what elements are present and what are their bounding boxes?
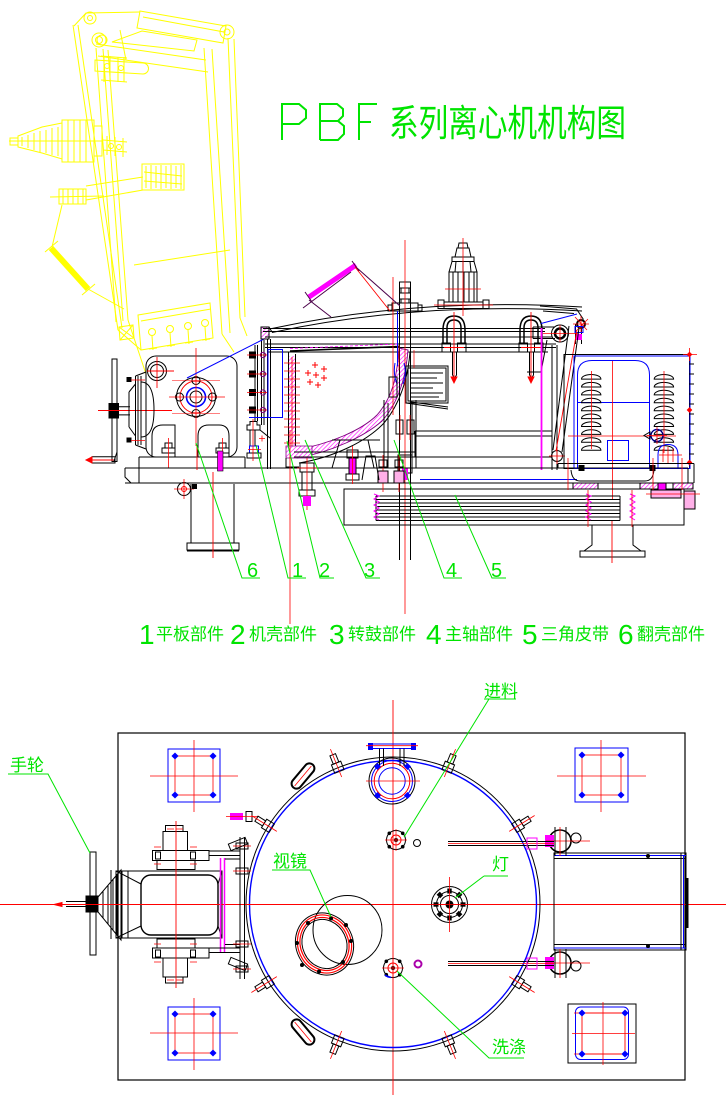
svg-text:手轮: 手轮 [10, 756, 44, 775]
svg-text:转鼓部件: 转鼓部件 [348, 625, 416, 644]
svg-text:3: 3 [364, 560, 375, 582]
svg-text:主轴部件: 主轴部件 [445, 625, 513, 644]
svg-text:4: 4 [426, 619, 442, 650]
svg-text:5: 5 [491, 560, 502, 582]
svg-text:6: 6 [618, 619, 634, 650]
svg-text:2: 2 [319, 560, 330, 582]
svg-text:三角皮带: 三角皮带 [541, 625, 609, 644]
svg-text:翻壳部件: 翻壳部件 [637, 625, 705, 644]
svg-text:进料: 进料 [484, 682, 518, 701]
svg-text:5: 5 [522, 619, 538, 650]
svg-text:洗涤: 洗涤 [492, 1038, 526, 1057]
svg-text:6: 6 [247, 560, 258, 582]
svg-text:视镜: 视镜 [273, 852, 307, 871]
svg-text:4: 4 [446, 560, 457, 582]
svg-text:平板部件: 平板部件 [156, 625, 224, 644]
svg-text:系列离心机机构图: 系列离心机机构图 [389, 103, 626, 144]
svg-text:机壳部件: 机壳部件 [249, 625, 317, 644]
svg-text:3: 3 [329, 619, 345, 650]
svg-text:2: 2 [230, 619, 246, 650]
svg-text:1: 1 [139, 619, 155, 650]
svg-text:1: 1 [292, 560, 303, 582]
svg-text:灯: 灯 [492, 855, 509, 874]
